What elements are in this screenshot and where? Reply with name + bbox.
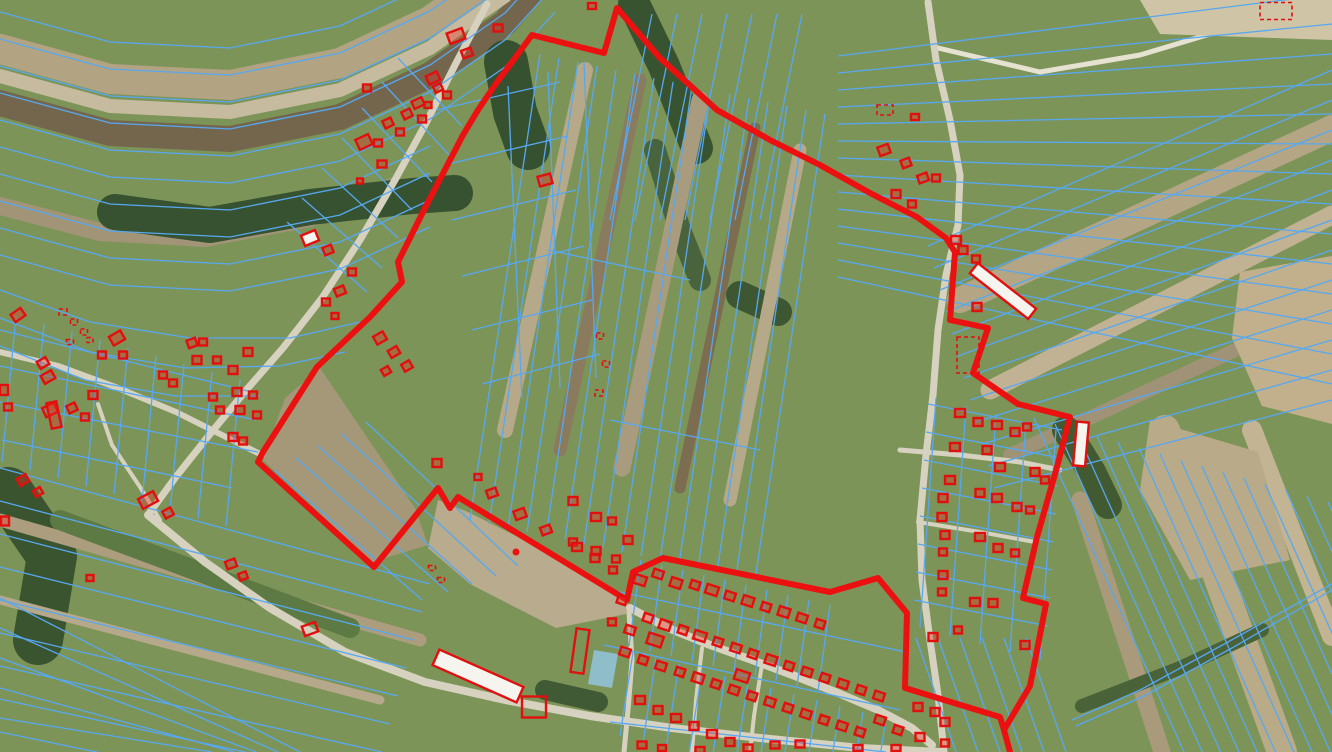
building-footprint[interactable] xyxy=(239,438,247,445)
building-footprint[interactable] xyxy=(591,554,600,562)
building-footprint[interactable] xyxy=(186,338,197,349)
building-footprint[interactable] xyxy=(837,679,849,690)
building-footprint[interactable] xyxy=(764,697,776,708)
building-footprint[interactable] xyxy=(652,569,664,580)
building-footprint[interactable] xyxy=(569,497,578,505)
building-footprint[interactable] xyxy=(332,313,339,319)
building-footprint[interactable] xyxy=(782,703,793,713)
building-footprint[interactable] xyxy=(433,459,442,467)
building-footprint[interactable] xyxy=(216,407,224,414)
building-footprint[interactable] xyxy=(914,703,923,711)
building-footprint[interactable] xyxy=(931,708,940,716)
building-footprint[interactable] xyxy=(939,549,947,556)
building-footprint[interactable] xyxy=(443,92,451,99)
building-footprint[interactable] xyxy=(608,619,616,626)
orthophoto-layer xyxy=(0,0,1332,752)
building-footprint[interactable] xyxy=(951,236,961,244)
building-footprint[interactable] xyxy=(892,725,903,735)
building-footprint[interactable] xyxy=(229,366,238,374)
building-footprint[interactable] xyxy=(814,619,825,629)
building-footprint[interactable] xyxy=(658,619,671,631)
building-footprint[interactable] xyxy=(642,613,653,623)
building-footprint[interactable] xyxy=(691,672,704,684)
building-footprint[interactable] xyxy=(730,643,742,654)
building-footprint[interactable] xyxy=(892,190,901,198)
building-footprint[interactable] xyxy=(938,513,947,521)
building-footprint[interactable] xyxy=(908,201,916,208)
building-footprint[interactable] xyxy=(771,742,780,749)
building-footprint[interactable] xyxy=(608,518,616,525)
building-footprint[interactable] xyxy=(959,246,968,254)
building-footprint[interactable] xyxy=(233,388,242,396)
building-footprint[interactable] xyxy=(994,544,1003,552)
building-footprint[interactable] xyxy=(633,574,647,586)
building-footprint[interactable] xyxy=(249,392,257,399)
building-footprint[interactable] xyxy=(989,599,998,607)
building-footprint[interactable] xyxy=(238,571,248,580)
building-footprint[interactable] xyxy=(572,543,582,551)
building-footprint[interactable] xyxy=(418,116,426,123)
building-footprint[interactable] xyxy=(616,595,627,605)
building-footprint[interactable] xyxy=(253,412,261,419)
building-footprint[interactable] xyxy=(955,409,965,417)
building-footprint[interactable] xyxy=(637,655,648,665)
building-footprint[interactable] xyxy=(322,299,330,306)
building-footprint[interactable] xyxy=(609,567,617,574)
building-footprint[interactable] xyxy=(874,715,886,726)
building-footprint[interactable] xyxy=(932,175,940,182)
building-footprint[interactable] xyxy=(777,606,790,618)
building-footprint[interactable] xyxy=(357,179,363,184)
building-footprint[interactable] xyxy=(796,613,808,624)
building-footprint[interactable] xyxy=(917,173,929,184)
building-footprint[interactable] xyxy=(760,602,771,612)
building-footprint[interactable] xyxy=(1073,422,1089,467)
building-footprint[interactable] xyxy=(726,738,735,746)
building-footprint[interactable] xyxy=(396,129,404,136)
building-footprint[interactable] xyxy=(378,161,387,168)
building-footprint[interactable] xyxy=(945,476,955,484)
building-footprint[interactable] xyxy=(1026,507,1034,514)
building-footprint[interactable] xyxy=(836,721,848,732)
building-footprint[interactable] xyxy=(746,691,757,701)
building-footprint[interactable] xyxy=(690,722,699,730)
building-footprint[interactable] xyxy=(710,679,721,689)
building-footprint[interactable] xyxy=(433,83,443,93)
building-footprint[interactable] xyxy=(229,433,238,441)
building-footprint[interactable] xyxy=(494,25,503,32)
building-footprint[interactable] xyxy=(486,488,498,499)
building-footprint[interactable] xyxy=(475,474,482,480)
building-footprint[interactable] xyxy=(169,380,177,387)
building-footprint[interactable] xyxy=(612,556,620,563)
building-footprint[interactable] xyxy=(635,696,645,704)
building-footprint[interactable] xyxy=(658,745,666,751)
building-footprint[interactable] xyxy=(707,730,717,738)
building-footprint[interactable] xyxy=(1,517,9,526)
building-footprint[interactable] xyxy=(728,685,740,696)
building-footprint[interactable] xyxy=(712,637,723,647)
building-footprint[interactable] xyxy=(199,339,207,346)
building-footprint[interactable] xyxy=(119,352,127,359)
building-footprint[interactable] xyxy=(624,625,636,636)
building-footprint[interactable] xyxy=(970,598,980,606)
terrain-band xyxy=(545,690,598,702)
building-footprint[interactable] xyxy=(1041,477,1049,484)
building-footprint[interactable] xyxy=(461,48,473,59)
building-footprint[interactable] xyxy=(588,3,596,9)
building-footprint[interactable] xyxy=(1011,550,1019,557)
building-footprint[interactable] xyxy=(213,357,221,364)
building-footprint[interactable] xyxy=(911,114,919,120)
building-footprint[interactable] xyxy=(374,140,382,147)
building-footprint[interactable] xyxy=(244,348,253,356)
building-footprint[interactable] xyxy=(983,446,992,454)
building-footprint[interactable] xyxy=(638,742,647,749)
building-footprint[interactable] xyxy=(537,173,552,186)
building-footprint[interactable] xyxy=(764,654,777,666)
building-footprint[interactable] xyxy=(671,714,681,722)
building-footprint[interactable] xyxy=(854,745,863,751)
building-footprint[interactable] xyxy=(747,649,758,659)
building-footprint[interactable] xyxy=(1023,424,1031,431)
building-footprint[interactable] xyxy=(973,303,982,311)
building-footprint[interactable] xyxy=(348,269,356,276)
building-footprint[interactable] xyxy=(975,533,985,541)
building-footprint[interactable] xyxy=(941,740,949,747)
building-footprint[interactable] xyxy=(363,85,371,92)
building-footprint[interactable] xyxy=(916,733,925,741)
building-footprint[interactable] xyxy=(540,525,552,536)
building-footprint[interactable] xyxy=(992,421,1002,429)
building-footprint[interactable] xyxy=(655,661,667,672)
building-footprint[interactable] xyxy=(225,559,237,570)
building-footprint[interactable] xyxy=(591,513,601,521)
building-footprint[interactable] xyxy=(0,385,8,395)
building-footprint[interactable] xyxy=(209,394,217,401)
building-footprint[interactable] xyxy=(1011,428,1020,436)
building-footprint[interactable] xyxy=(669,577,682,589)
building-footprint[interactable] xyxy=(81,414,89,421)
building-footprint[interactable] xyxy=(796,741,805,748)
building-footprint[interactable] xyxy=(236,406,245,414)
building-footprint[interactable] xyxy=(1021,641,1030,649)
building-footprint[interactable] xyxy=(974,418,983,426)
building-footprint[interactable] xyxy=(705,584,719,596)
building-footprint[interactable] xyxy=(976,489,985,497)
building-footprint[interactable] xyxy=(744,745,753,752)
building-footprint[interactable] xyxy=(818,715,829,725)
building-footprint[interactable] xyxy=(322,245,333,256)
building-footprint[interactable] xyxy=(941,718,950,726)
building-footprint[interactable] xyxy=(677,625,688,635)
building-footprint[interactable] xyxy=(87,575,94,581)
building-footprint[interactable] xyxy=(693,630,707,642)
aerial-map[interactable] xyxy=(0,0,1332,752)
building-footprint[interactable] xyxy=(939,571,948,579)
building-footprint[interactable] xyxy=(783,661,794,671)
building-footprint[interactable] xyxy=(995,463,1005,471)
building-footprint[interactable] xyxy=(892,745,901,751)
building-footprint[interactable] xyxy=(900,158,911,169)
building-footprint[interactable] xyxy=(689,580,700,590)
building-footprint[interactable] xyxy=(724,591,736,602)
building-footprint[interactable] xyxy=(193,356,202,364)
building-footprint[interactable] xyxy=(425,102,432,108)
building-footprint[interactable] xyxy=(674,667,685,677)
building-footprint[interactable] xyxy=(741,595,754,607)
building-footprint[interactable] xyxy=(98,352,106,359)
building-footprint[interactable] xyxy=(1013,503,1022,511)
building-footprint[interactable] xyxy=(819,673,830,683)
building-footprint[interactable] xyxy=(654,706,663,714)
building-footprint[interactable] xyxy=(4,404,12,411)
building-footprint[interactable] xyxy=(939,494,948,502)
building-footprint[interactable] xyxy=(800,709,812,720)
building-footprint[interactable] xyxy=(992,494,1002,502)
building-footprint[interactable] xyxy=(950,443,960,451)
building-footprint[interactable] xyxy=(972,256,980,263)
building-footprint[interactable] xyxy=(938,589,946,596)
building-footprint[interactable] xyxy=(929,633,938,641)
building-footprint[interactable] xyxy=(877,144,890,156)
building-footprint[interactable] xyxy=(1031,468,1040,476)
map-viewport[interactable] xyxy=(0,0,1332,752)
building-footprint[interactable] xyxy=(854,727,865,737)
building-footprint[interactable] xyxy=(941,531,950,539)
building-footprint[interactable] xyxy=(954,627,962,634)
point-marker xyxy=(513,549,520,556)
building-footprint[interactable] xyxy=(89,391,98,399)
building-footprint[interactable] xyxy=(873,691,885,702)
building-footprint[interactable] xyxy=(801,667,813,678)
building-footprint[interactable] xyxy=(696,747,705,752)
building-footprint[interactable] xyxy=(855,685,866,695)
building-footprint[interactable] xyxy=(619,647,631,658)
building-footprint[interactable] xyxy=(513,508,526,520)
building-footprint[interactable] xyxy=(624,536,633,544)
building-footprint[interactable] xyxy=(159,372,167,379)
